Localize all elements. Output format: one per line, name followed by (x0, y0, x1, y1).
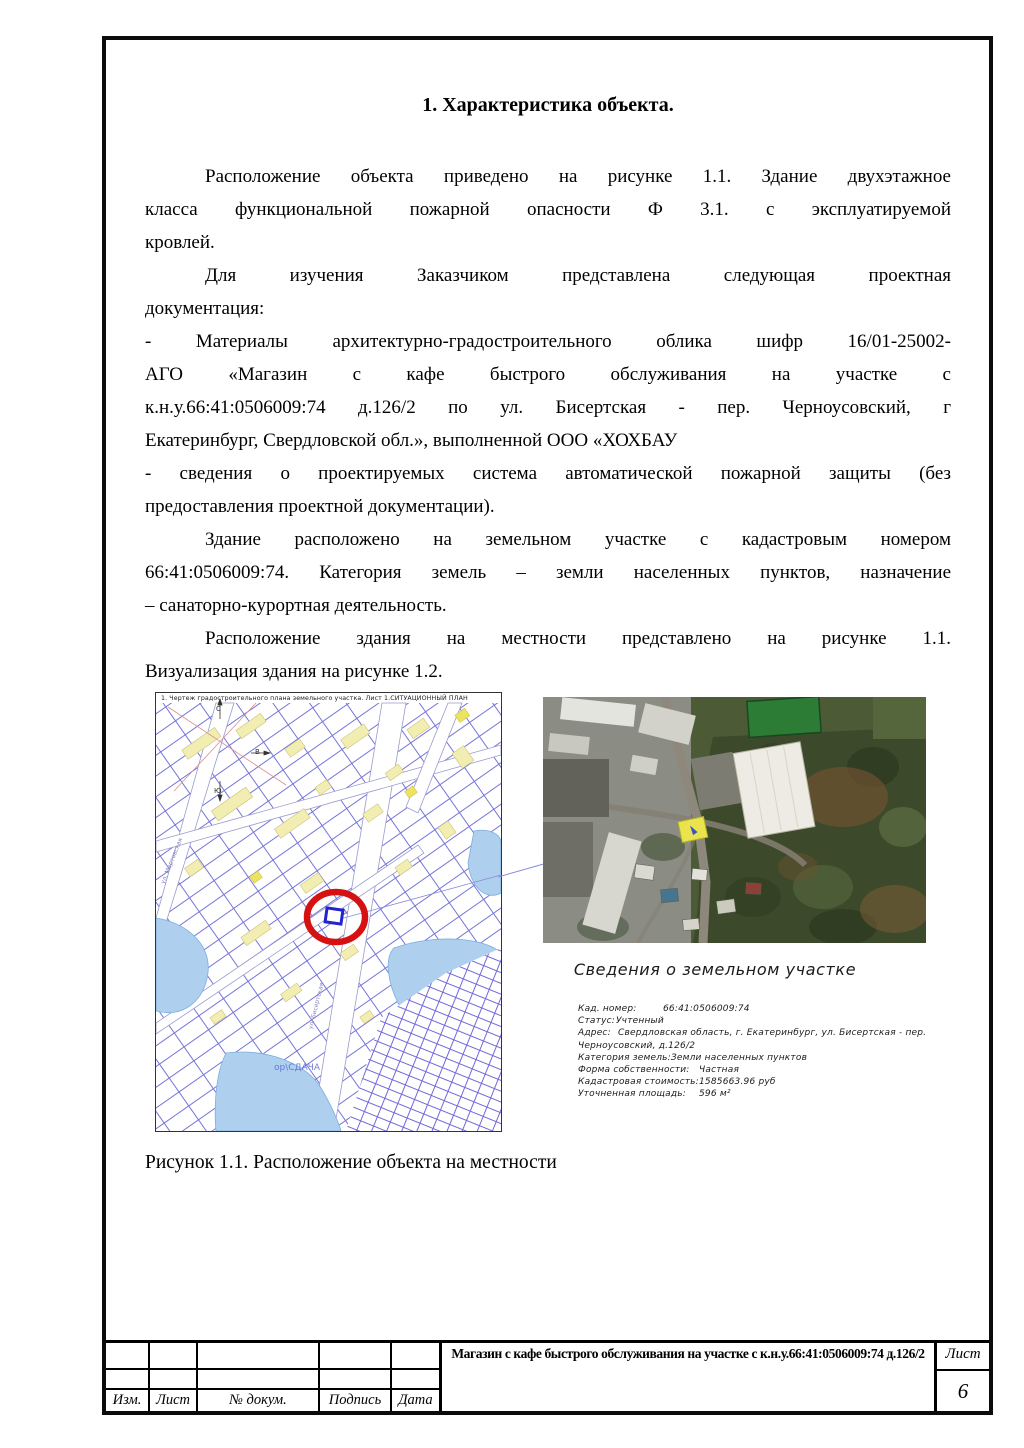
title-block-col-podpis: Подпись (320, 1390, 390, 1411)
parcel-row-label: Кад. номер: (578, 1003, 663, 1015)
text-line: АГО «Магазин с кафе быстрого обслуживани… (145, 358, 951, 391)
parcel-row-label: Статус: (578, 1015, 616, 1027)
parcel-row-value: 1585663.96 руб (699, 1077, 776, 1087)
parcel-row-value: 596 м² (699, 1089, 731, 1099)
parcel-row: Кад. номер:66:41:0506009:74 (578, 1003, 956, 1015)
parcel-row-value: Земли населенных пунктов (671, 1053, 807, 1063)
title-block-cell (106, 1343, 148, 1368)
parcel-row-value: 66:41:0506009:74 (663, 1004, 750, 1014)
parcel-info-title: Сведения о земельном участке (520, 960, 910, 979)
parcel-row: Адрес:Свердловская область, г. Екатеринб… (578, 1027, 956, 1051)
parcel-row: Уточненная площадь:596 м² (578, 1088, 956, 1100)
title-block-cell (106, 1370, 148, 1388)
compass-south-icon: Ю (214, 787, 222, 795)
compass-north-icon: С (216, 705, 221, 713)
satellite-drawing (543, 697, 926, 943)
parcel-row: Категория земель:Земли населенных пункто… (578, 1052, 956, 1064)
paragraph-6: Расположение здания на местности предста… (145, 622, 951, 688)
parcel-row: Статус:Учтенный (578, 1015, 956, 1027)
text-line: Екатеринбург, Свердловской обл.», выполн… (145, 424, 951, 457)
sheet-label: Лист (937, 1343, 989, 1371)
title-block-cell (198, 1370, 318, 1388)
text-line: к.н.у.66:41:0506009:74 д.126/2 по ул. Би… (145, 391, 951, 424)
parcel-info: Кад. номер:66:41:0506009:74 Статус:Учтен… (578, 1003, 956, 1101)
body-text: 1. Характеристика объекта. Расположение … (145, 92, 951, 688)
text-line: 66:41:0506009:74. Категория земель – зем… (145, 556, 951, 589)
parcel-row-value: Свердловская область, г. Екатеринбург, у… (578, 1028, 926, 1050)
figure-caption: Рисунок 1.1. Расположение объекта на мес… (145, 1152, 557, 1174)
page-frame: 1. Характеристика объекта. Расположение … (102, 36, 993, 1415)
title-block-cell (198, 1343, 318, 1368)
map-drawing (156, 693, 501, 1131)
document-page: 1. Характеристика объекта. Расположение … (0, 0, 1024, 1448)
parcel-row-label: Форма собственности: (578, 1064, 699, 1076)
title-block-cell (150, 1343, 196, 1368)
text-line: Здание расположено на земельном участке … (145, 523, 951, 556)
situational-plan-map: 1. Чертеж градостроительного плана земел… (155, 692, 502, 1132)
text-line: Расположение здания на местности предста… (145, 622, 951, 655)
title-block-sheet: Лист 6 (937, 1343, 989, 1411)
paragraph-5: Здание расположено на земельном участке … (145, 523, 951, 622)
compass-east-icon: В (255, 748, 260, 756)
text-line: предоставления проектной документации). (145, 490, 951, 523)
title-block-cell (392, 1343, 439, 1368)
text-line: кровлей. (145, 226, 951, 259)
text-line: - Материалы архитектурно-градостроительн… (145, 325, 951, 358)
title-block-col-dokum: № докум. (198, 1390, 318, 1411)
title-block-col-izm: Изм. (106, 1390, 148, 1411)
text-line: - сведения о проектируемых система автом… (145, 457, 951, 490)
paragraph-4: - сведения о проектируемых система автом… (145, 457, 951, 523)
text-line: документация: (145, 292, 951, 325)
text-line: – санаторно-курортная деятельность. (145, 589, 951, 622)
title-block-col-data: Дата (392, 1390, 439, 1411)
parcel-row: Кадастровая стоимость:1585663.96 руб (578, 1076, 956, 1088)
leader-line (495, 855, 550, 885)
parcel-row-label: Уточненная площадь: (578, 1088, 699, 1100)
paragraph-2: Для изучения Заказчиком представлена сле… (145, 259, 951, 325)
title-block-cell (150, 1370, 196, 1388)
parcel-row-label: Адрес: (578, 1027, 618, 1039)
paragraph-3: - Материалы архитектурно-градостроительн… (145, 325, 951, 457)
parcel-row-value: Частная (699, 1065, 739, 1075)
title-block-col-list: Лист (150, 1390, 196, 1411)
title-block: Изм. Лист № докум. Подпись Дата Магазин … (106, 1340, 989, 1411)
paragraph-1: Расположение объекта приведено на рисунк… (145, 160, 951, 259)
section-heading: 1. Характеристика объекта. (145, 92, 951, 118)
map-watermark: ор\СДАЧА (274, 1063, 320, 1073)
text-line: Визуализация здания на рисунке 1.2. (145, 655, 951, 688)
title-block-cell (320, 1370, 390, 1388)
satellite-image (543, 697, 926, 943)
title-block-doc-name: Магазин с кафе быстрого обслуживания на … (442, 1343, 937, 1411)
parcel-row-label: Категория земель: (578, 1052, 671, 1064)
title-block-cell (320, 1343, 390, 1368)
parcel-row-label: Кадастровая стоимость: (578, 1076, 699, 1088)
text-line: Для изучения Заказчиком представлена сле… (145, 259, 951, 292)
text-line: Расположение объекта приведено на рисунк… (145, 160, 951, 193)
text-line: класса функциональной пожарной опасности… (145, 193, 951, 226)
parcel-row: Форма собственности:Частная (578, 1064, 956, 1076)
map-header-label: 1. Чертеж градостроительного плана земел… (161, 695, 499, 702)
title-block-grid: Изм. Лист № докум. Подпись Дата (106, 1343, 442, 1411)
sheet-number: 6 (937, 1371, 989, 1411)
title-block-cell (392, 1370, 439, 1388)
parcel-row-value: Учтенный (616, 1016, 664, 1026)
doc-title-text: Магазин с кафе быстрого обслуживания на … (451, 1346, 924, 1362)
